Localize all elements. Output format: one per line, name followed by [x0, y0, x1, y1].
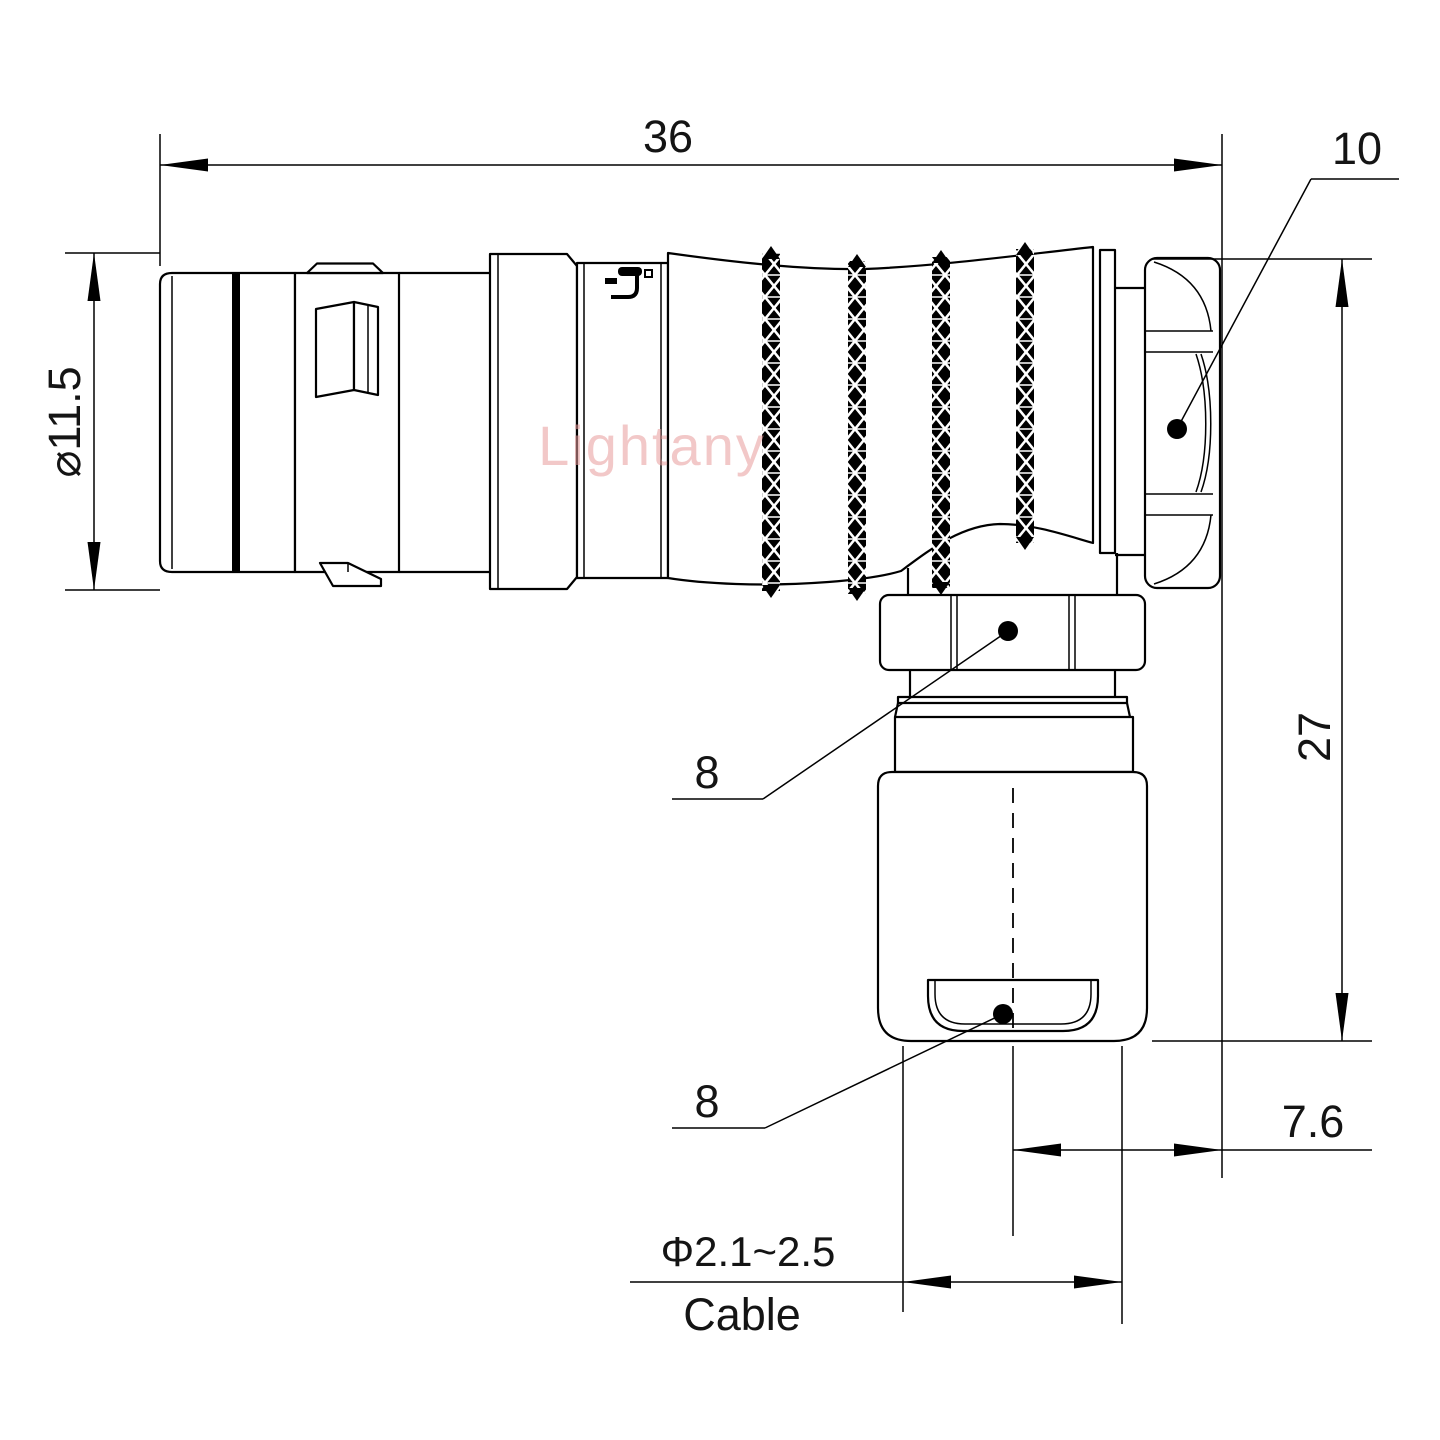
plug-barrel [160, 273, 295, 572]
leader-dot [993, 1004, 1013, 1024]
latch-window-front [316, 302, 354, 397]
backnut-washer [1100, 250, 1145, 555]
knurl-tip-bottom [1016, 537, 1034, 550]
cable-diameter-label: Φ2.1~2.5 [661, 1228, 836, 1275]
arrow-right [1174, 159, 1222, 172]
mid-section [399, 273, 490, 572]
gland-lip-ring [898, 697, 1127, 703]
washer-outline [1100, 250, 1115, 553]
arrow-left [160, 159, 208, 172]
knurl-band-fill [848, 261, 866, 594]
leader-dot [1167, 419, 1187, 439]
knurl-tip-top [848, 254, 866, 267]
arrow-left [1013, 1144, 1061, 1157]
callout-10-label: 10 [1332, 123, 1382, 174]
arrow-up [1336, 259, 1349, 307]
latch-sleeve [295, 264, 399, 587]
callout-8-top-label: 8 [694, 747, 719, 798]
knurl-tip-top [762, 246, 780, 259]
dimension-7-6: 7.6 [1013, 1046, 1372, 1236]
technical-drawing-canvas: 36 10 ⌀11.5 27 8 8 [0, 0, 1440, 1440]
logo-dash [605, 278, 617, 284]
knurl-tip-top [932, 250, 950, 263]
arrow-left [903, 1276, 951, 1289]
arrow-right [1074, 1276, 1122, 1289]
gland-taper-right [1127, 703, 1130, 717]
arrow-down [1336, 993, 1349, 1041]
arrow-down [88, 542, 101, 590]
cable-word-label: Cable [683, 1289, 801, 1340]
cable-gland [878, 670, 1147, 1041]
dimension-diameter-11-5: ⌀11.5 [39, 253, 160, 590]
dim-7-6-label: 7.6 [1282, 1096, 1345, 1147]
knurl-tip-bottom [848, 588, 866, 601]
drawing-page: 36 10 ⌀11.5 27 8 8 [0, 0, 1440, 1440]
connector-side-view [160, 242, 1220, 1041]
leader-dot [998, 621, 1018, 641]
knurl-tip-bottom [932, 582, 950, 595]
knurl-tip-bottom [762, 585, 780, 598]
logo-bar [618, 267, 642, 276]
knurl-band-2 [848, 254, 866, 601]
knurl-band-3 [932, 250, 950, 595]
latch-top-tab [307, 264, 383, 274]
knurl-band-4 [1016, 242, 1034, 550]
gland-mid-barrel [895, 717, 1133, 772]
dim-27-label: 27 [1289, 712, 1340, 762]
arrow-right [1174, 1144, 1222, 1157]
knurl-band-fill [932, 257, 950, 588]
latch-window-side [354, 302, 378, 395]
knurl-band-fill [1016, 249, 1034, 543]
plug-barrel-outline [160, 273, 295, 572]
knurl-tip-top [1016, 242, 1034, 255]
dim-36-label: 36 [643, 111, 693, 162]
watermark-text: Lightany [538, 414, 766, 477]
dim-11-5-label: ⌀11.5 [39, 366, 90, 477]
plug-key-stripe [232, 274, 240, 571]
arrow-up [88, 253, 101, 301]
gland-taper-left [895, 703, 898, 717]
callout-8-bottom-label: 8 [694, 1076, 719, 1127]
